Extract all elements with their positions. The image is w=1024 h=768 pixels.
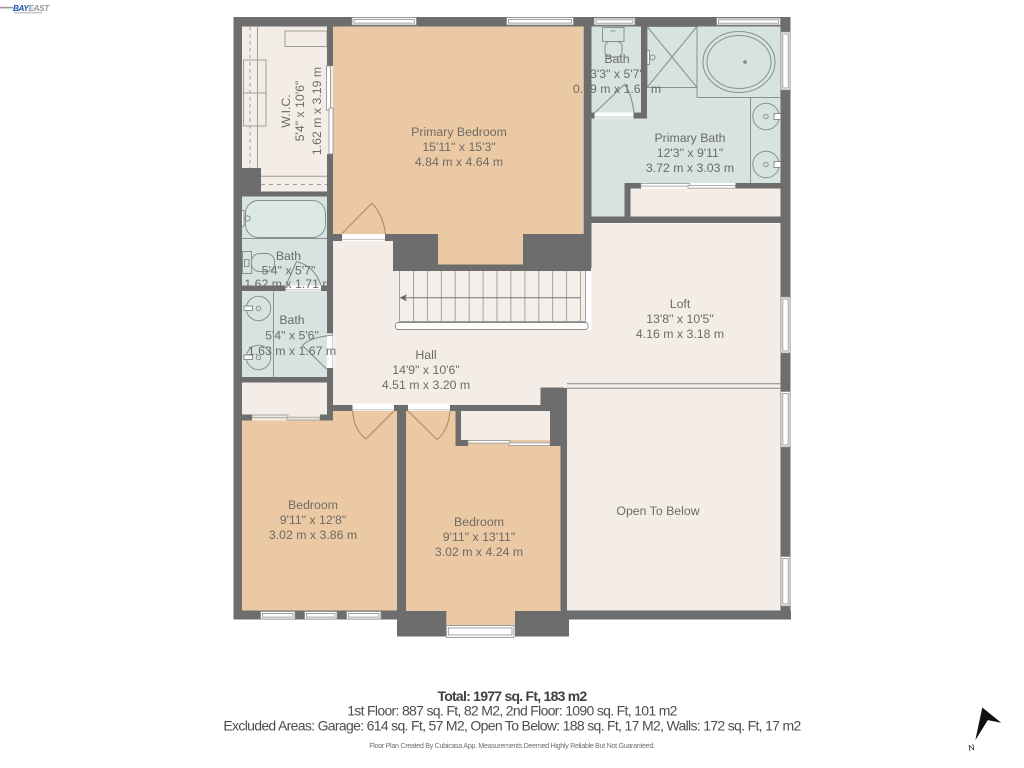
svg-text:3'3" x 5'7": 3'3" x 5'7": [590, 67, 644, 81]
svg-text:4.84 m x 4.64 m: 4.84 m x 4.64 m: [415, 155, 503, 169]
svg-text:Loft: Loft: [670, 297, 691, 311]
svg-text:Bath: Bath: [276, 249, 301, 263]
svg-text:5'4" x 5'6": 5'4" x 5'6": [265, 329, 319, 343]
svg-text:Floor Plan Created By Cubicasa: Floor Plan Created By Cubicasa App. Meas…: [369, 741, 655, 750]
svg-text:4.51 m x 3.20 m: 4.51 m x 3.20 m: [382, 378, 470, 392]
svg-text:0.99 m x 1.67 m: 0.99 m x 1.67 m: [573, 82, 661, 96]
svg-text:15'11" x 15'3": 15'11" x 15'3": [422, 140, 495, 154]
svg-text:14'9" x 10'6": 14'9" x 10'6": [392, 363, 459, 377]
svg-text:3.02 m x 4.24 m: 3.02 m x 4.24 m: [435, 545, 523, 559]
svg-text:9'11" x 12'8": 9'11" x 12'8": [280, 513, 347, 527]
svg-text:5'4" x 5'7": 5'4" x 5'7": [262, 264, 316, 278]
svg-text:1.63 m x 1.67 m: 1.63 m x 1.67 m: [248, 344, 336, 358]
svg-text:Bedroom: Bedroom: [288, 498, 338, 512]
svg-text:1st Floor: 887 sq. Ft, 82 M2,: 1st Floor: 887 sq. Ft, 82 M2, 2nd Floor:…: [347, 703, 677, 719]
svg-text:Open To Below: Open To Below: [616, 504, 699, 518]
svg-text:Bedroom: Bedroom: [454, 515, 504, 529]
svg-text:3.72 m x 3.03 m: 3.72 m x 3.03 m: [646, 161, 734, 175]
svg-text:1.62 m x 1.71 m: 1.62 m x 1.71 m: [244, 277, 332, 291]
svg-text:5'4" x 10'6": 5'4" x 10'6": [293, 81, 307, 142]
svg-text:Hall: Hall: [415, 348, 436, 362]
svg-text:Excluded Areas: Garage: 614 sq: Excluded Areas: Garage: 614 sq. Ft, 57 M…: [223, 718, 801, 734]
svg-text:Primary Bath: Primary Bath: [654, 131, 725, 145]
svg-text:12'3" x 9'11": 12'3" x 9'11": [657, 146, 724, 160]
svg-text:9'11" x 13'11": 9'11" x 13'11": [443, 530, 515, 544]
svg-text:Bath: Bath: [604, 52, 629, 66]
svg-text:W.I.C.: W.I.C.: [279, 94, 293, 127]
svg-text:Primary Bedroom: Primary Bedroom: [411, 125, 507, 139]
svg-text:Bath: Bath: [279, 313, 304, 327]
svg-text:BAYEAST: BAYEAST: [13, 4, 50, 13]
svg-text:3.02 m x 3.86 m: 3.02 m x 3.86 m: [269, 528, 357, 542]
svg-text:N: N: [967, 741, 977, 753]
svg-text:1.62 m x 3.19 m: 1.62 m x 3.19 m: [310, 67, 324, 155]
svg-text:4.16 m x 3.18 m: 4.16 m x 3.18 m: [636, 327, 724, 341]
svg-text:13'8" x 10'5": 13'8" x 10'5": [646, 312, 713, 326]
